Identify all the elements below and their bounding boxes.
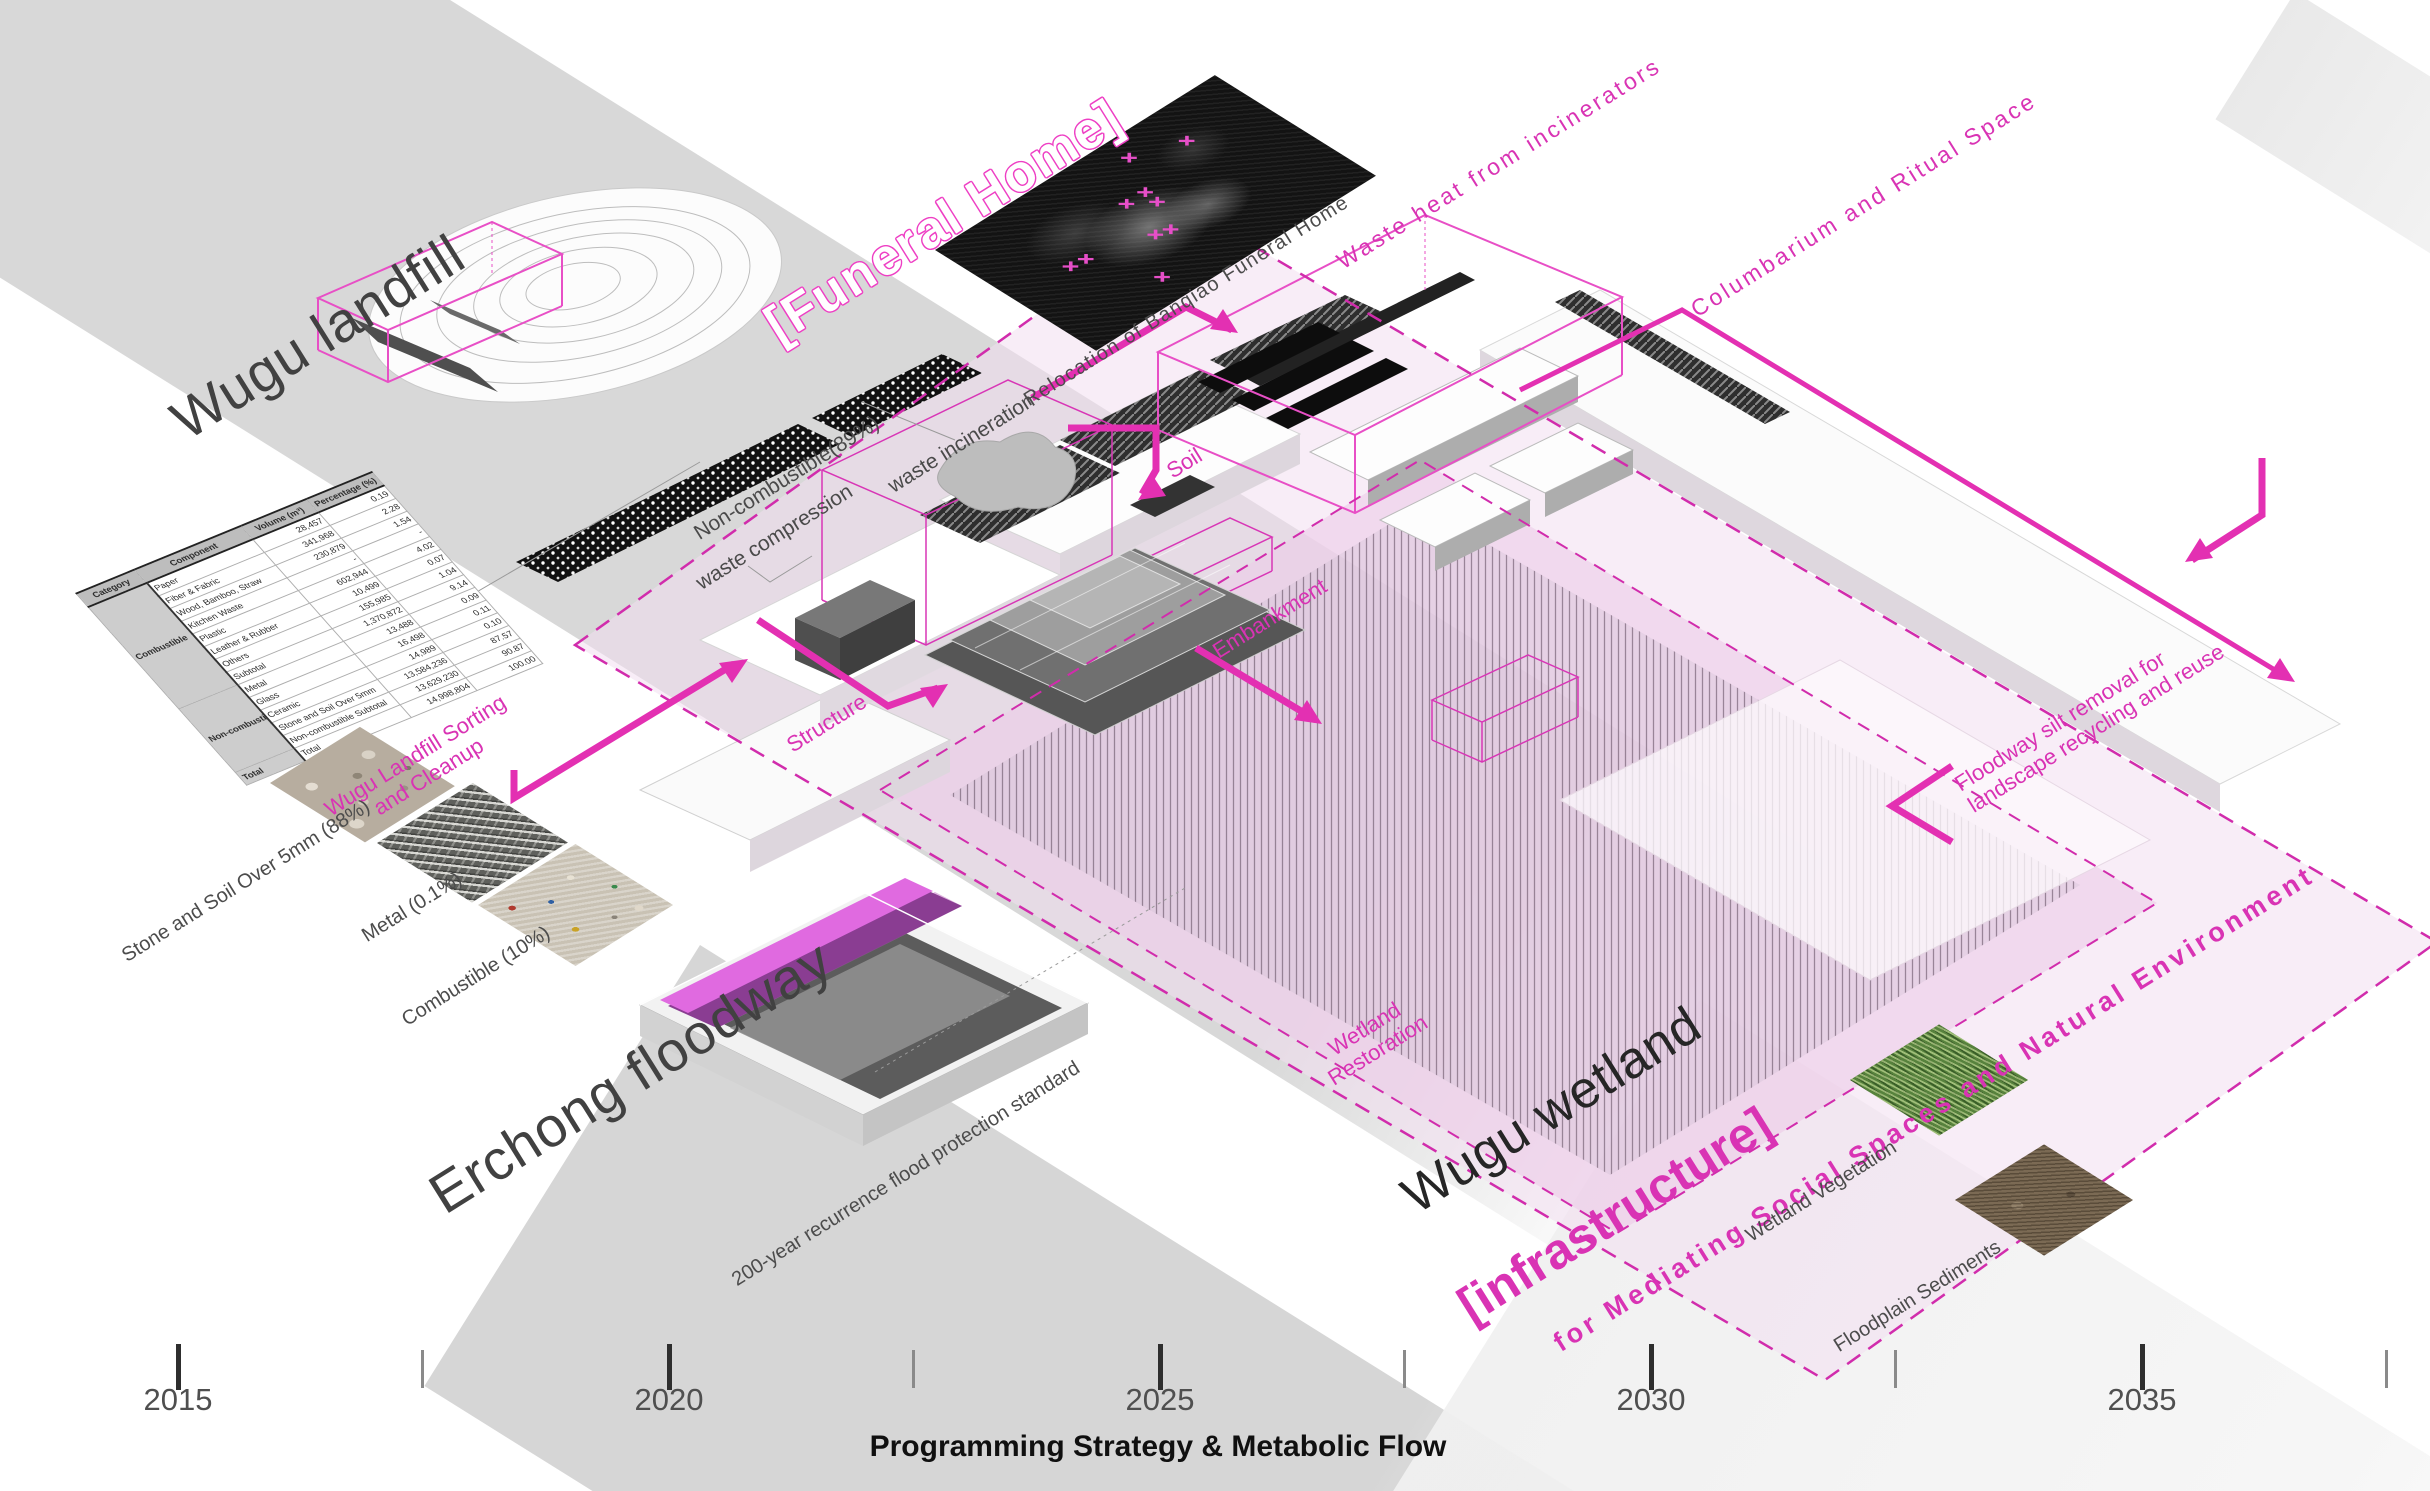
diagram-canvas: Category Component Volume (m³) Percentag… (0, 0, 2430, 1491)
year-label-2030: 2030 (1571, 1382, 1731, 1418)
funeral-site-marker (1175, 133, 1197, 147)
year-label-2025: 2025 (1080, 1382, 1240, 1418)
funeral-site-marker (1145, 194, 1167, 208)
timeline-minor-tick (912, 1350, 915, 1388)
timeline-minor-tick (421, 1350, 424, 1388)
timeline-minor-tick (2385, 1350, 2388, 1388)
year-label-2020: 2020 (589, 1382, 749, 1418)
year-label-2015: 2015 (98, 1382, 258, 1418)
funeral-site-marker (1150, 270, 1172, 284)
timeline-minor-tick (1894, 1350, 1897, 1388)
year-label-2035: 2035 (2062, 1382, 2222, 1418)
funeral-site-marker (1117, 150, 1139, 164)
diagram-caption: Programming Strategy & Metabolic Flow (758, 1430, 1558, 1464)
timeline-minor-tick (1403, 1350, 1406, 1388)
funeral-site-marker (1115, 196, 1137, 210)
